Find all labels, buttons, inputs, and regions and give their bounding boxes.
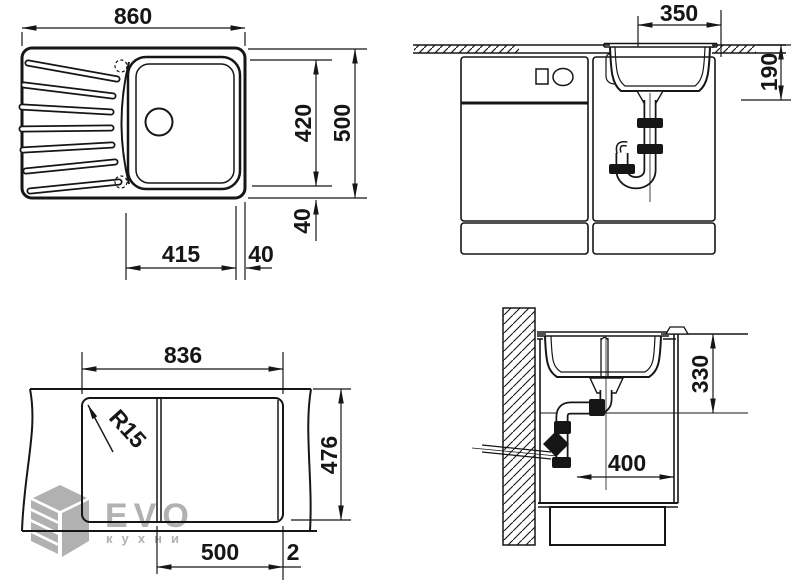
corner-radius-leader bbox=[88, 405, 113, 452]
pipe-nut bbox=[552, 457, 571, 468]
cutout-width-dim-label: 836 bbox=[164, 342, 202, 368]
drain-hole bbox=[146, 109, 173, 136]
joint-gap-dim-label: 2 bbox=[287, 539, 300, 565]
brand-cube-icon bbox=[31, 485, 89, 557]
drain-trap bbox=[609, 91, 663, 202]
wall-section bbox=[503, 308, 535, 545]
pipe-nut bbox=[609, 164, 635, 174]
overflow-standpipe bbox=[601, 338, 608, 378]
left-cabinet bbox=[461, 57, 588, 221]
countertop-hatch-left bbox=[414, 46, 519, 54]
corner-radius-label: R15 bbox=[104, 404, 152, 453]
bowl-inner bbox=[136, 64, 234, 183]
brand-tagline-text: кухни bbox=[106, 531, 188, 546]
bowl-width-dim-label: 350 bbox=[660, 0, 698, 26]
edge-offset-depth-dim-label: 40 bbox=[289, 208, 315, 234]
edge-offset-width-dim-label: 40 bbox=[248, 241, 274, 267]
bowl-section-width-dim-label: 500 bbox=[201, 539, 239, 565]
cutout-depth-dim-label: 476 bbox=[316, 436, 342, 474]
countertop-hatch-right bbox=[712, 46, 756, 54]
brand-logo-text: EVO bbox=[105, 497, 195, 535]
drain-offset-dim-label: 400 bbox=[608, 450, 646, 476]
bowl-depth-dim-label: 190 bbox=[756, 53, 782, 91]
tap-hole-top bbox=[115, 60, 127, 72]
overall-width-dim-label: 860 bbox=[114, 3, 152, 29]
bowl-section bbox=[604, 44, 717, 92]
control-knob bbox=[553, 69, 573, 86]
overall-width-dim bbox=[22, 28, 245, 46]
pipe-nut bbox=[589, 399, 605, 416]
control-square bbox=[536, 69, 548, 84]
plinth bbox=[550, 507, 665, 545]
bowl-side-section bbox=[537, 327, 688, 377]
sink-technical-drawing-sheet: EVO кухни 860 420 bbox=[0, 0, 800, 584]
front-section-view: 350 190 bbox=[413, 0, 791, 254]
trap-height-dim-label: 330 bbox=[687, 355, 713, 393]
bowl-zone-width-dim-label: 415 bbox=[162, 241, 201, 267]
overall-depth-dim-label: 500 bbox=[329, 104, 355, 142]
rear-ledge bbox=[666, 327, 688, 334]
plan-view: 860 420 500 40 415 40 bbox=[22, 3, 367, 280]
bowl-zone-depth-dim-label: 420 bbox=[290, 104, 316, 142]
side-section-view: 330 400 bbox=[472, 308, 748, 545]
technical-drawing: EVO кухни 860 420 bbox=[0, 0, 800, 584]
left-cabinet-plinth-drawer bbox=[461, 223, 588, 254]
sink-cabinet-plinth-drawer bbox=[593, 223, 715, 254]
